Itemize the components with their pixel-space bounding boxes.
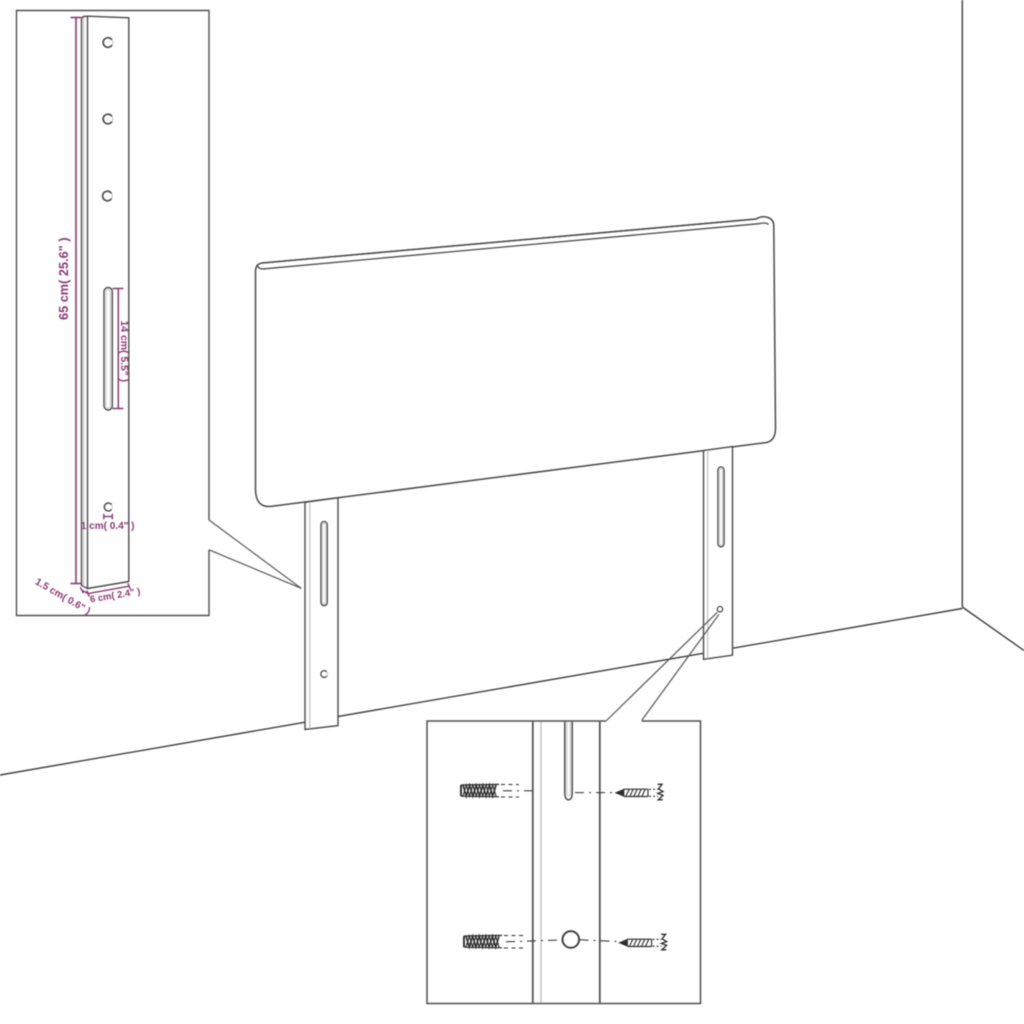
svg-text:65 cm( 25.6" ): 65 cm( 25.6" ) — [57, 237, 71, 320]
svg-text:14 cm( 5.5" ): 14 cm( 5.5" ) — [118, 321, 130, 383]
svg-text:1 cm( 0.4" ): 1 cm( 0.4" ) — [81, 521, 135, 532]
